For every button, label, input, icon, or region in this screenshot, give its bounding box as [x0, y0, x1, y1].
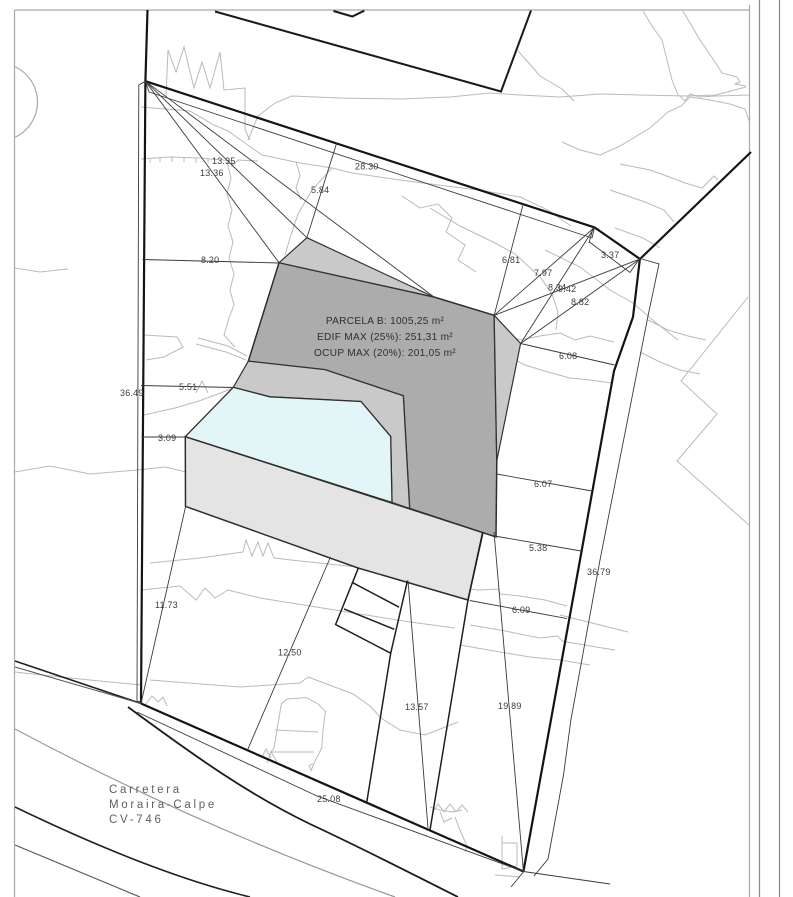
svg-text:5.38: 5.38 [529, 543, 547, 553]
svg-text:Moraira-Calpe: Moraira-Calpe [109, 799, 217, 811]
svg-text:3.09: 3.09 [158, 433, 176, 443]
svg-text:CV-746: CV-746 [109, 814, 164, 826]
svg-text:EDIF MAX (25%): 251,31 m²: EDIF MAX (25%): 251,31 m² [317, 332, 453, 343]
svg-text:5.84: 5.84 [311, 185, 329, 195]
svg-text:12.50: 12.50 [278, 648, 302, 658]
svg-text:6.07: 6.07 [534, 479, 552, 489]
svg-text:Carretera: Carretera [109, 784, 182, 796]
svg-text:5.51: 5.51 [179, 382, 197, 392]
svg-text:3.37: 3.37 [601, 250, 619, 260]
svg-text:9.42: 9.42 [558, 284, 576, 294]
svg-text:25.08: 25.08 [317, 794, 341, 804]
svg-text:7.97: 7.97 [534, 268, 552, 278]
svg-text:28.30: 28.30 [355, 162, 379, 172]
svg-text:6.09: 6.09 [512, 605, 530, 615]
svg-text:11.73: 11.73 [155, 600, 178, 610]
svg-text:6.81: 6.81 [502, 255, 520, 265]
svg-text:13.36: 13.36 [200, 168, 224, 178]
svg-text:OCUP MAX (20%): 201,05 m²: OCUP MAX (20%): 201,05 m² [314, 348, 456, 359]
svg-text:13.35: 13.35 [212, 156, 236, 166]
svg-text:8.82: 8.82 [571, 297, 589, 307]
svg-text:19.89: 19.89 [498, 701, 522, 711]
svg-text:6.08: 6.08 [559, 351, 577, 361]
svg-text:13.57: 13.57 [405, 702, 429, 712]
svg-text:36.49: 36.49 [120, 388, 144, 398]
svg-text:8.20: 8.20 [201, 255, 219, 265]
svg-text:PARCELA B: 1005,25 m²: PARCELA B: 1005,25 m² [326, 316, 445, 327]
svg-text:36.79: 36.79 [587, 567, 611, 577]
